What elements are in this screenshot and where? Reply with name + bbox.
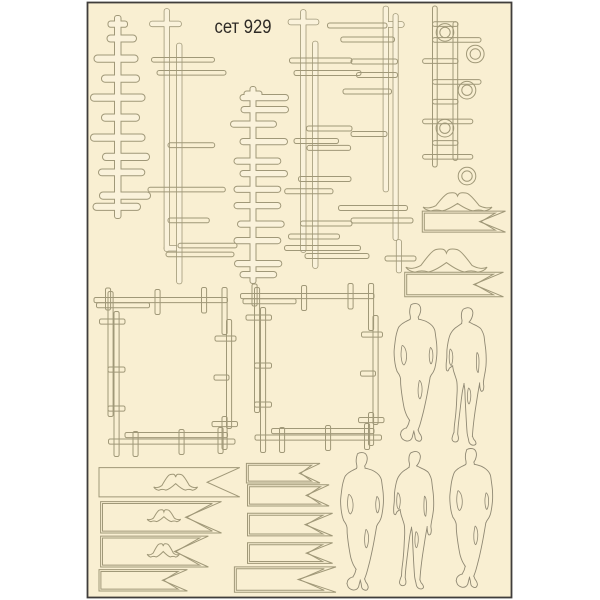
svg-text:сет 929: сет 929 [215,17,272,38]
